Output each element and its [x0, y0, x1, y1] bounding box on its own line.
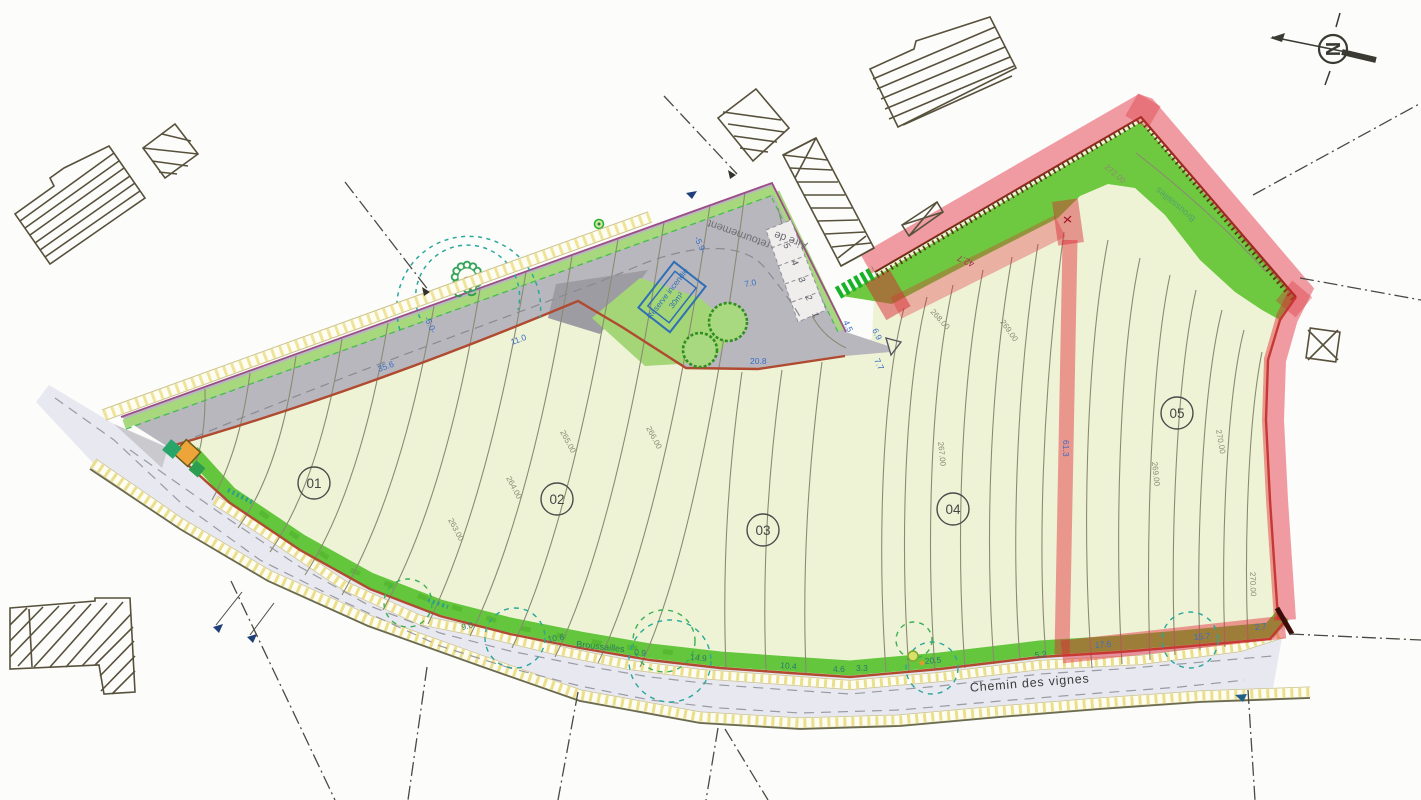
svg-text:270.00: 270.00 — [1248, 572, 1258, 597]
svg-text:5.2: 5.2 — [1034, 649, 1047, 660]
svg-text:N: N — [1323, 42, 1345, 56]
svg-text:14.9: 14.9 — [690, 652, 708, 663]
svg-text:2.7: 2.7 — [1254, 621, 1267, 632]
svg-text:61.3: 61.3 — [1061, 440, 1071, 457]
svg-text:15.7: 15.7 — [1193, 631, 1211, 642]
svg-text:4.6: 4.6 — [833, 664, 845, 674]
svg-text:10.4: 10.4 — [780, 660, 798, 671]
svg-text:7.0: 7.0 — [744, 277, 758, 289]
svg-text:03: 03 — [755, 523, 770, 538]
svg-text:17.6: 17.6 — [1094, 639, 1112, 650]
svg-text:20.8: 20.8 — [750, 356, 767, 366]
svg-text:0.9: 0.9 — [634, 647, 647, 658]
svg-text:05: 05 — [1169, 406, 1184, 421]
svg-text:02: 02 — [549, 492, 564, 507]
svg-text:04: 04 — [945, 502, 961, 517]
svg-text:01: 01 — [306, 476, 321, 491]
svg-text:20.5: 20.5 — [924, 655, 942, 666]
svg-text:3.3: 3.3 — [856, 663, 868, 673]
